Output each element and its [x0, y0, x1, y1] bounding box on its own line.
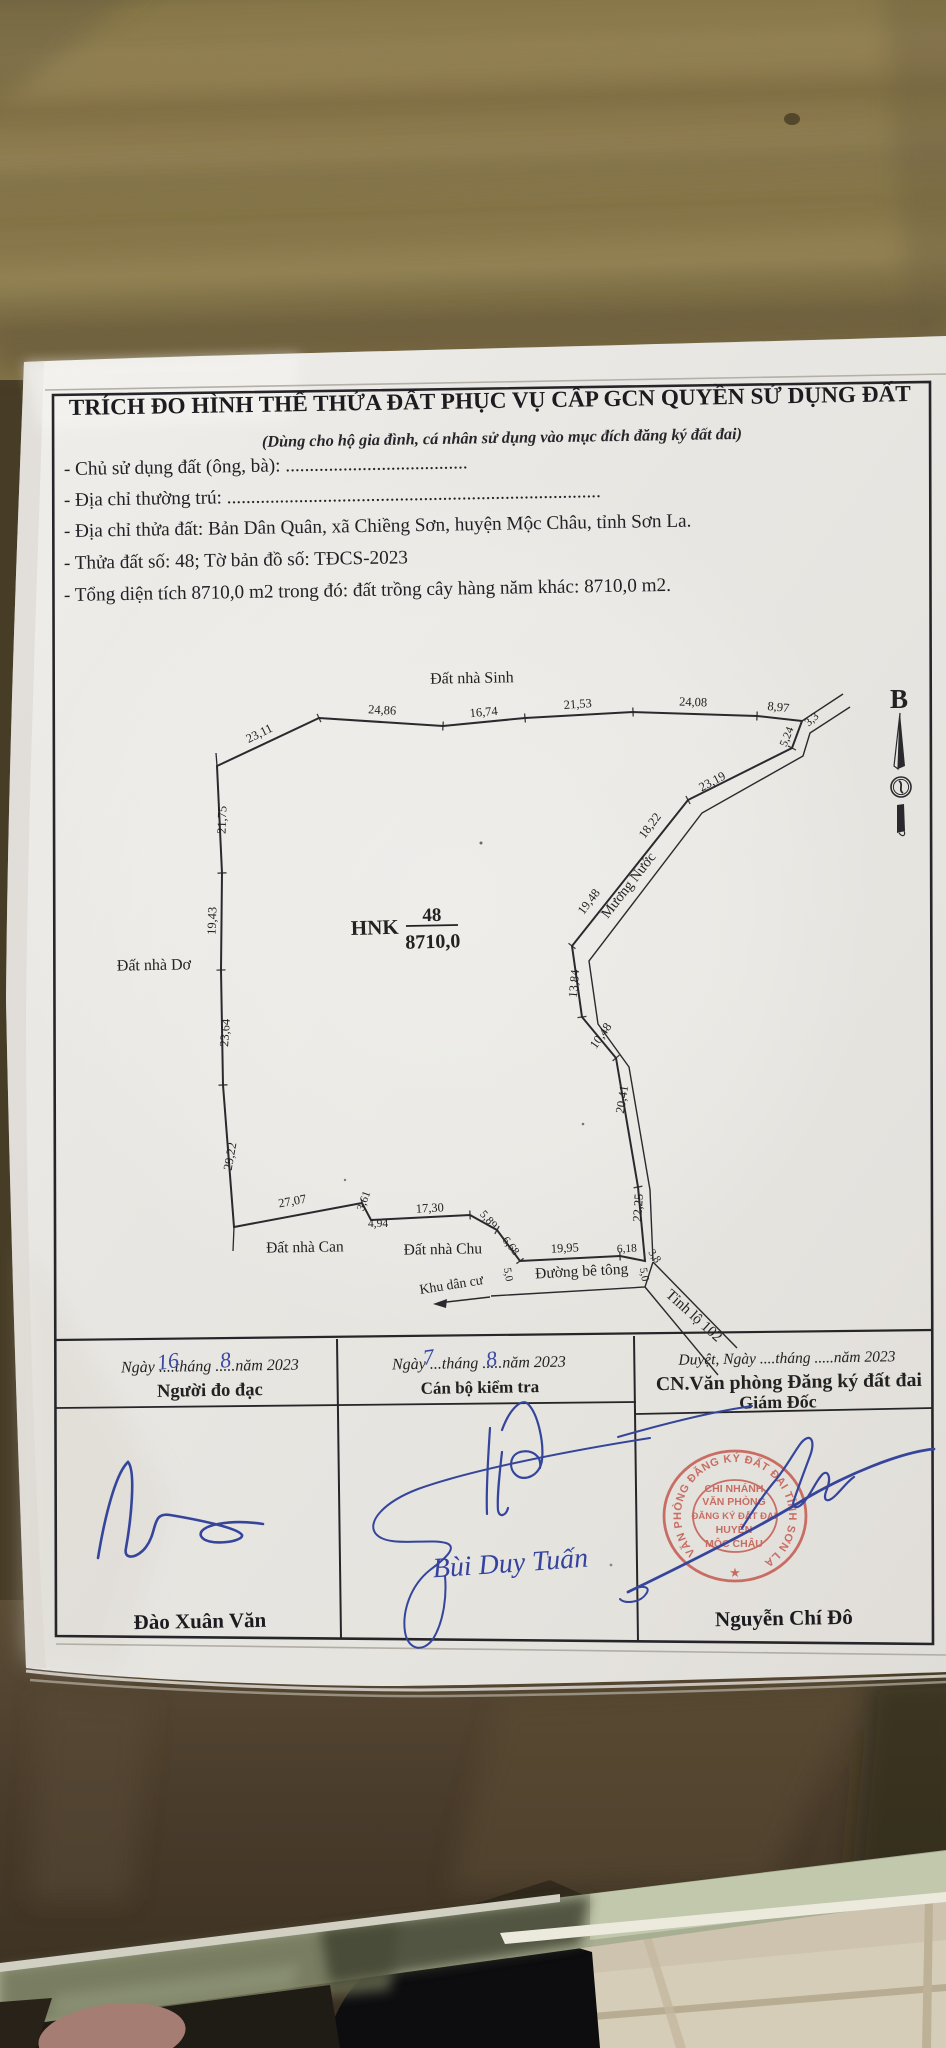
svg-text:21,75: 21,75: [215, 806, 230, 835]
svg-text:8710,0: 8710,0: [405, 930, 461, 953]
svg-text:16: 16: [155, 1347, 180, 1375]
svg-text:Đất nhà Can: Đất nhà Can: [266, 1238, 344, 1256]
svg-text:B: B: [890, 684, 908, 714]
svg-text:Ngày ...tháng .....năm 2023: Ngày ...tháng .....năm 2023: [391, 1354, 566, 1374]
svg-text:Ngày ....tháng .....năm 2023: Ngày ....tháng .....năm 2023: [120, 1357, 299, 1377]
svg-text:22,25: 22,25: [630, 1193, 646, 1222]
svg-text:21,53: 21,53: [563, 696, 592, 712]
svg-text:Nguyễn Chí Đô: Nguyễn Chí Đô: [715, 1605, 853, 1631]
svg-text:Đất nhà Sinh: Đất nhà Sinh: [430, 669, 514, 687]
svg-text:Đào Xuân Văn: Đào Xuân Văn: [133, 1608, 266, 1634]
svg-text:48: 48: [422, 905, 442, 926]
svg-text:Đất nhà Dơ: Đất nhà Dơ: [117, 956, 192, 974]
svg-text:HUYỆN: HUYỆN: [716, 1523, 753, 1536]
svg-text:24,08: 24,08: [679, 695, 708, 710]
svg-text:Giám Đốc: Giám Đốc: [739, 1391, 817, 1412]
svg-text:19,95: 19,95: [550, 1240, 579, 1255]
svg-text:Cán bộ kiểm tra: Cán bộ kiểm tra: [421, 1377, 540, 1398]
svg-text:23,64: 23,64: [217, 1017, 233, 1047]
svg-text:8,97: 8,97: [767, 699, 790, 715]
svg-text:16,74: 16,74: [469, 704, 499, 720]
svg-text:HNK: HNK: [351, 915, 400, 940]
svg-text:4,94: 4,94: [368, 1218, 388, 1230]
svg-text:5,0: 5,0: [637, 1267, 651, 1283]
svg-text:5,0: 5,0: [501, 1267, 515, 1283]
svg-text:19,43: 19,43: [205, 907, 220, 936]
svg-text:CHI NHÁNH: CHI NHÁNH: [705, 1482, 764, 1495]
svg-text:Duyệt, Ngày ....tháng .....năm: Duyệt, Ngày ....tháng .....năm 2023: [677, 1348, 895, 1368]
svg-text:6,18: 6,18: [616, 1242, 637, 1255]
svg-text:ĐĂNG KÝ ĐẤT ĐAI: ĐĂNG KÝ ĐẤT ĐAI: [692, 1510, 777, 1522]
svg-text:Người đo đạc: Người đo đạc: [157, 1380, 263, 1402]
svg-text:Đất nhà Chu: Đất nhà Chu: [404, 1240, 483, 1258]
svg-text:17,30: 17,30: [415, 1200, 444, 1215]
svg-text:★: ★: [729, 1565, 741, 1580]
svg-text:13,84: 13,84: [566, 968, 582, 998]
svg-text:24,86: 24,86: [368, 702, 397, 717]
